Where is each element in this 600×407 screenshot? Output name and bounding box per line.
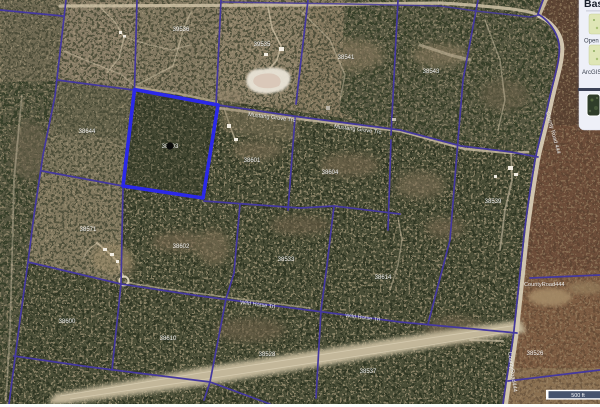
svg-text:38537: 38537 [360,369,377,375]
svg-text:38539: 38539 [485,199,502,205]
svg-text:38604: 38604 [322,170,339,176]
svg-text:38610: 38610 [160,336,177,342]
svg-text:500 ft: 500 ft [571,393,585,399]
svg-text:38541: 38541 [338,55,355,61]
svg-text:38543: 38543 [423,69,440,75]
svg-text:38644: 38644 [79,129,96,135]
svg-text:Open: Open [584,39,599,45]
svg-text:ArcGIS: ArcGIS [582,70,600,76]
svg-text:38571: 38571 [80,227,97,233]
svg-text:39536: 39536 [173,27,190,33]
svg-text:38600: 38600 [59,319,76,325]
svg-text:38601: 38601 [244,158,261,164]
svg-text:CountyRoad444: CountyRoad444 [524,282,564,288]
svg-text:38602: 38602 [173,244,190,250]
svg-text:Bas: Bas [584,0,600,10]
svg-text:38526: 38526 [527,351,544,357]
svg-text:38533: 38533 [278,257,295,263]
svg-text:38614: 38614 [375,275,392,281]
svg-text:38528: 38528 [259,352,276,358]
svg-text:39535: 39535 [254,42,271,48]
